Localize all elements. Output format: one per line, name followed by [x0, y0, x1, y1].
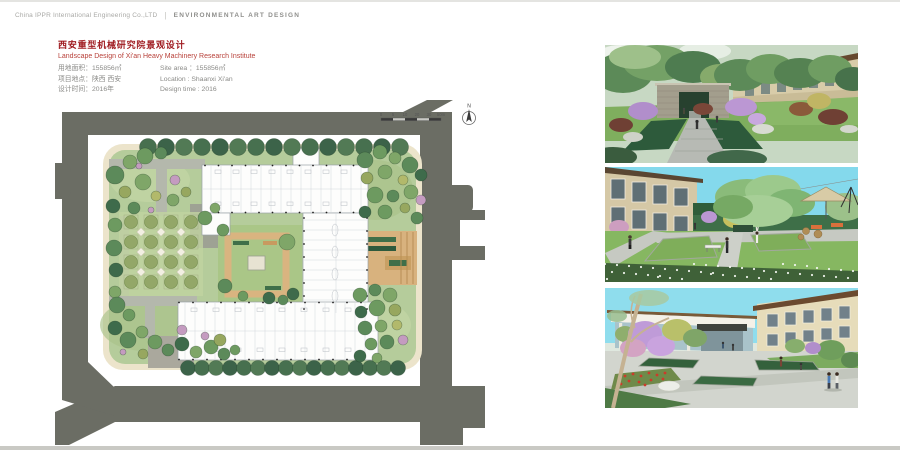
scale-label-4: 30 — [427, 112, 432, 117]
render-entrance-plaza — [605, 288, 858, 408]
scale-label-3: 20 — [415, 112, 420, 117]
site-plan-drawing: 0 5 10 20 30 50m N — [55, 100, 485, 445]
render-garden-gateway — [605, 45, 858, 163]
page-bottom-edge — [0, 446, 900, 450]
project-info-fields: 用地面积：155856㎡ Site area ：155856㎡ 项目地点：陕西 … — [58, 64, 273, 95]
header-divider: | — [164, 11, 166, 20]
field-site-area-cn: 用地面积：155856㎡ — [58, 64, 146, 74]
scale-label-5: 50m — [437, 112, 446, 117]
render-courtyard-lawn-image — [605, 167, 858, 282]
render-courtyard-lawn — [605, 167, 858, 282]
project-title-block: 西安重型机械研究院景观设计 Landscape Design of Xi'an … — [58, 38, 273, 95]
field-design-time-cn: 设计时间：2016年 — [58, 85, 146, 95]
company-name: China IPPR International Engineering Co.… — [15, 12, 157, 19]
page-top-edge — [0, 0, 900, 2]
scale-label-2: 10 — [403, 112, 408, 117]
render-garden-gateway-image — [605, 45, 858, 163]
field-site-area-en: Site area ：155856㎡ — [160, 64, 273, 74]
north-label: N — [467, 104, 471, 110]
presentation-board: China IPPR International Engineering Co.… — [0, 0, 900, 450]
site-plan: 0 5 10 20 30 50m N — [55, 100, 485, 445]
project-title-en: Landscape Design of Xi'an Heavy Machiner… — [58, 53, 273, 60]
white-rock — [658, 381, 680, 391]
field-location-en: Location : Shaanxi Xi'an — [160, 75, 273, 85]
field-design-time-en: Design time : 2016 — [160, 85, 273, 95]
render-entrance-plaza-image — [605, 288, 858, 408]
north-arrow-icon: N — [463, 104, 476, 125]
stone-gateway — [655, 83, 731, 118]
page-header: China IPPR International Engineering Co.… — [15, 11, 300, 20]
project-title-cn: 西安重型机械研究院景观设计 — [58, 38, 273, 51]
department-name: ENVIRONMENTAL ART DESIGN — [174, 12, 301, 19]
field-location-cn: 项目地点：陕西 西安 — [58, 75, 146, 85]
